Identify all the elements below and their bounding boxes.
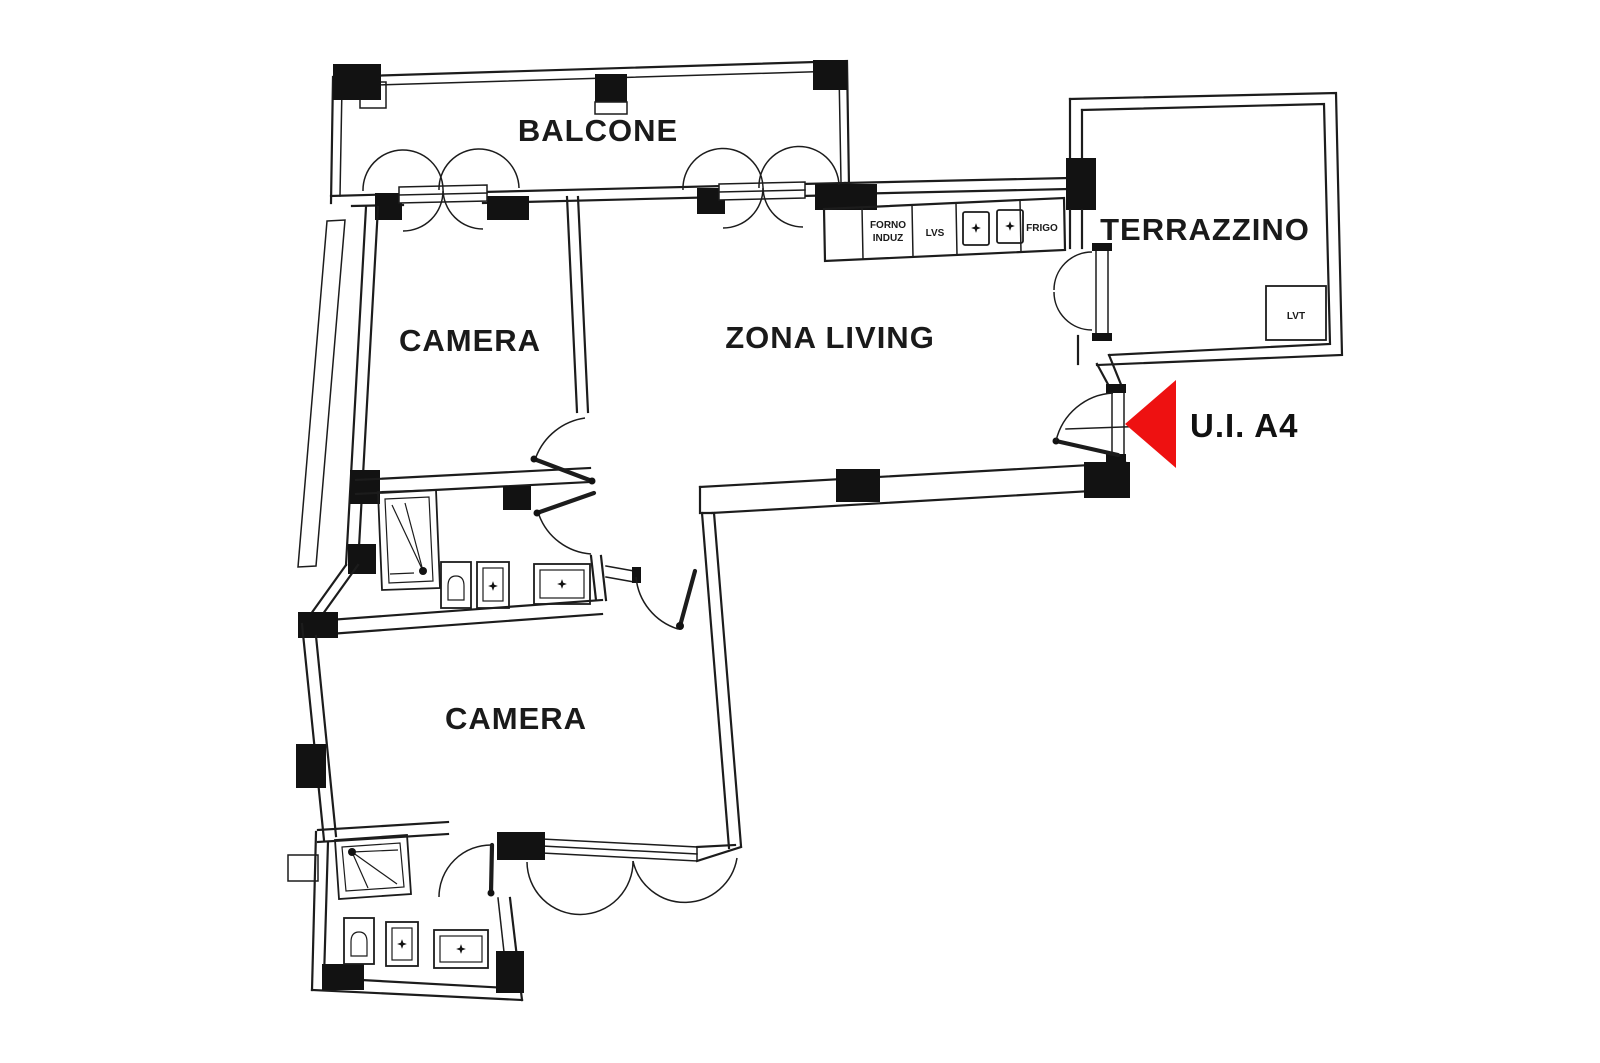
kitchen-counter: FORNO INDUZ LVS FRIGO	[824, 198, 1065, 261]
faucet-star-icon	[488, 581, 498, 591]
pillar	[333, 64, 381, 100]
pillar	[595, 74, 627, 102]
shower-drain	[419, 567, 427, 575]
room-terrazzino: LVT TERRAZZINO	[1054, 93, 1342, 388]
unit-label: U.I. A4	[1190, 407, 1298, 444]
toilet	[344, 918, 374, 964]
camera1-door	[531, 418, 596, 485]
room-label-zona-living: ZONA LIVING	[725, 320, 935, 355]
bathroom1-door	[534, 493, 595, 554]
camera2-door	[636, 571, 695, 630]
room-label-camera-2: CAMERA	[445, 701, 587, 736]
faucet-star-icon	[397, 939, 407, 949]
unit-entrance-arrow	[1125, 380, 1176, 468]
entrance: U.I. A4	[1053, 380, 1299, 468]
bathroom-2	[288, 832, 524, 1000]
appliance-label-lvs: LVS	[926, 228, 945, 239]
bathroom-1	[378, 490, 606, 608]
room-camera-1: CAMERA	[298, 207, 596, 574]
balcony: BALCONE	[331, 60, 849, 203]
pillar	[813, 60, 847, 90]
entrance-door-leaf	[1056, 441, 1118, 455]
faucet-star-icon	[971, 223, 981, 233]
appliance-label-forno: FORNO	[870, 220, 906, 231]
fixture-label-lvt: LVT	[1287, 311, 1305, 322]
floor-plan: BALCONE	[0, 0, 1600, 1063]
shower-drain	[348, 848, 356, 856]
toilet	[441, 562, 471, 608]
floor-plan-canvas: BALCONE	[0, 0, 1600, 1063]
terrazzino-door	[1054, 252, 1092, 330]
appliance-label-induz: INDUZ	[873, 233, 904, 244]
appliance-label-frigo: FRIGO	[1026, 223, 1058, 234]
room-label-terrazzino: TERRAZZINO	[1100, 212, 1310, 247]
room-label-balcone: BALCONE	[518, 113, 678, 148]
faucet-star-icon	[557, 579, 567, 589]
faucet-star-icon	[456, 944, 466, 954]
party-wall-strip	[298, 220, 345, 567]
room-label-camera-1: CAMERA	[399, 323, 541, 358]
room-zona-living: ZONA LIVING	[567, 197, 1130, 513]
faucet-star-icon	[1005, 221, 1015, 231]
bathroom2-door	[439, 845, 495, 897]
north-wall	[331, 147, 1068, 231]
entrance-door-arc	[1056, 393, 1113, 441]
